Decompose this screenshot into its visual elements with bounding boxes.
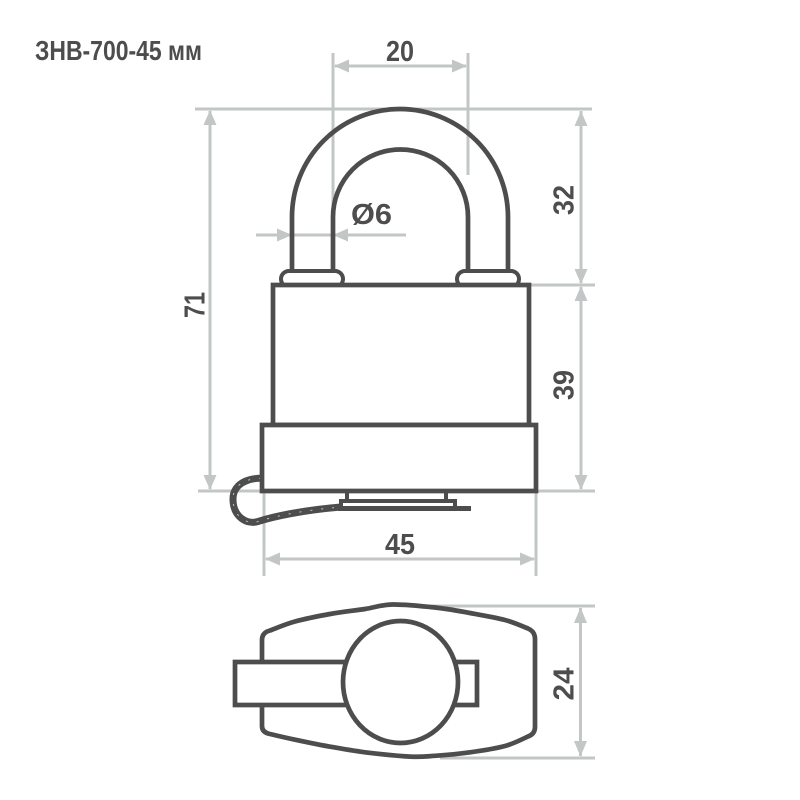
svg-text:39: 39 bbox=[549, 370, 581, 400]
svg-text:ЗНВ-700-45 мм: ЗНВ-700-45 мм bbox=[35, 35, 202, 66]
svg-text:24: 24 bbox=[549, 668, 581, 701]
svg-text:Ø6: Ø6 bbox=[351, 199, 392, 231]
svg-text:32: 32 bbox=[549, 185, 581, 215]
svg-text:45: 45 bbox=[385, 529, 415, 561]
svg-text:20: 20 bbox=[386, 36, 414, 68]
svg-text:71: 71 bbox=[180, 292, 212, 318]
